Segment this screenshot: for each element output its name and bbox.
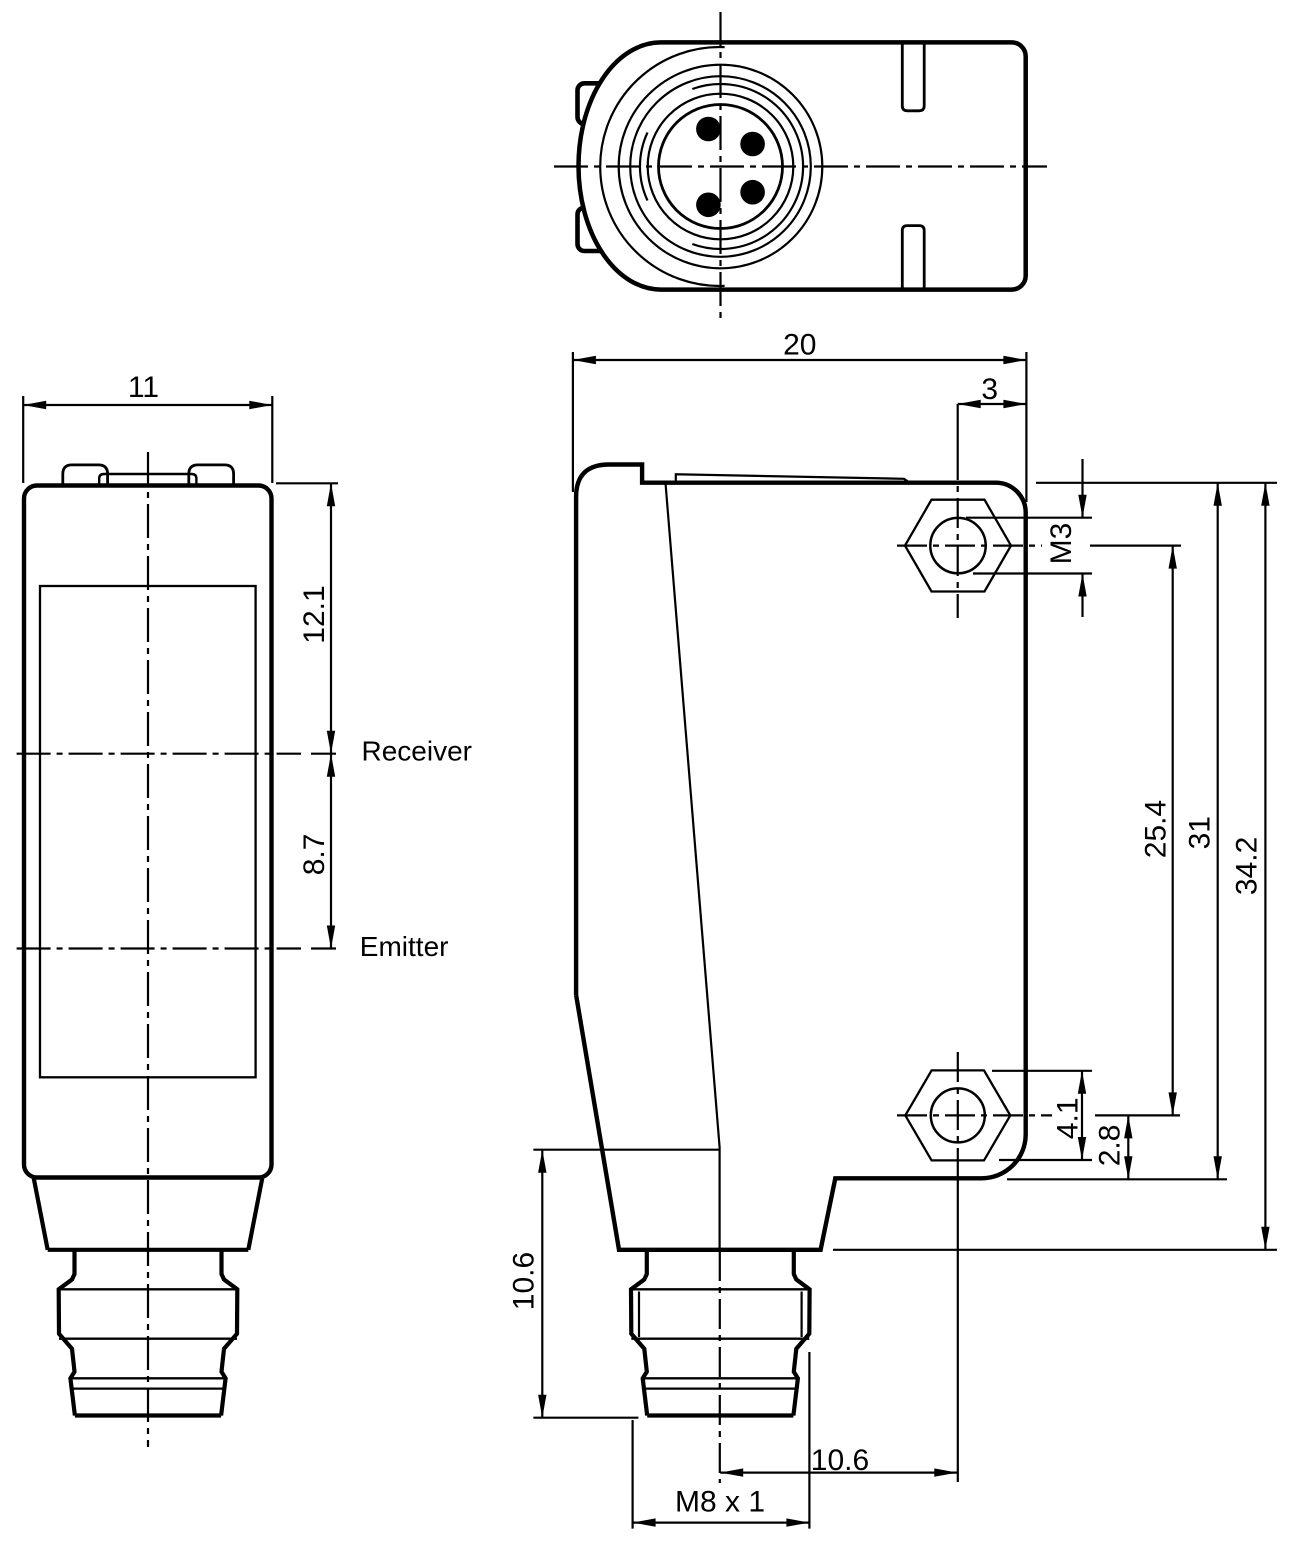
svg-text:8.7: 8.7 [298,834,331,876]
svg-text:10.6: 10.6 [811,1444,869,1477]
svg-text:2.8: 2.8 [1094,1125,1127,1167]
svg-text:Receiver: Receiver [362,736,472,767]
svg-text:Emitter: Emitter [360,931,449,962]
svg-text:12.1: 12.1 [298,585,331,643]
svg-text:11: 11 [128,371,159,404]
svg-text:10.6: 10.6 [507,1252,540,1310]
svg-text:31: 31 [1184,816,1217,849]
svg-text:20: 20 [783,329,816,362]
svg-text:M8 x 1: M8 x 1 [675,1486,765,1519]
svg-text:34.2: 34.2 [1231,837,1264,895]
svg-text:M3: M3 [1045,523,1078,565]
svg-text:4.1: 4.1 [1051,1097,1084,1139]
svg-text:3: 3 [981,373,998,406]
svg-text:25.4: 25.4 [1139,800,1172,858]
